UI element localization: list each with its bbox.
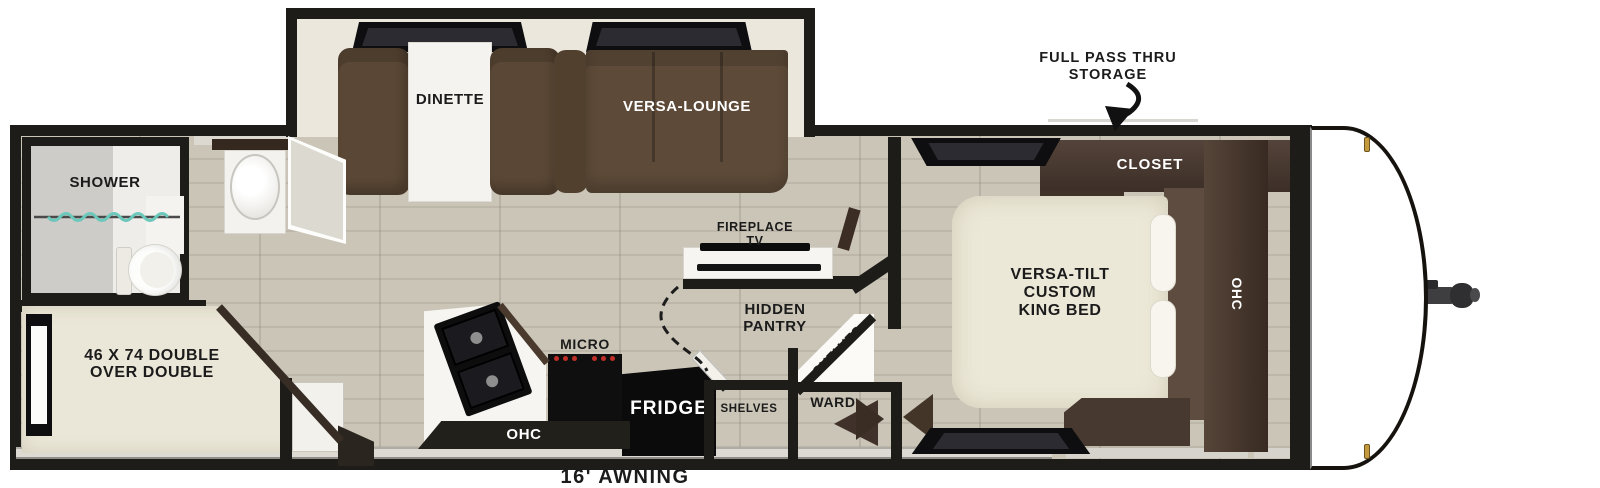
storage-callout-line2: STORAGE [1020,67,1196,84]
pillow-bottom [1150,300,1176,378]
closet-label: CLOSET [1075,157,1225,174]
dinette-bench-right [490,48,560,195]
vanity-counter-edge [212,139,288,150]
shower-label: SHOWER [40,175,170,192]
shelf-closet-right-wall [788,348,798,460]
rv-floorplan-diagram: DINETTE VERSA-LOUNGE SHOWER 46 X 74 DOUB… [0,0,1600,488]
hidden-pantry-label: HIDDEN PANTRY [709,302,841,335]
slideout-window-right-glass [596,28,742,46]
bunk-label-line2: OVER DOUBLE [40,364,264,381]
shelf-closet-label: SHELVES [712,403,786,416]
fireplace-tv-label: FIREPLACE TV [699,221,811,248]
toilet-seat [140,252,174,288]
king-bed-label: VERSA-TILT CUSTOM KING BED [962,266,1158,320]
burner-knob-6 [610,356,615,361]
pantry-label-line1: HIDDEN [709,302,841,319]
bedroom-ohc-label: OHC [1228,262,1244,326]
sink-drain-bottom [484,374,499,389]
storage-seam-line [1048,119,1198,122]
storage-callout: FULL PASS THRU STORAGE [1020,50,1196,83]
fireplace-hearth-lip [697,264,821,271]
versa-lounge-label: VERSA-LOUNGE [586,99,788,116]
storage-arrow-curve [1127,84,1139,114]
dinette-label: DINETTE [408,92,492,109]
bedroom-window-top-glass [926,143,1046,160]
burner-knob-4 [592,356,597,361]
burner-knob-3 [572,356,577,361]
kitchen-ohc-label: OHC [464,427,584,444]
sink-drain-top [469,330,484,345]
shelf-closet-left-wall [704,380,714,460]
micro-label: MICRO [548,337,622,353]
lounge-armrest [554,50,588,193]
hitch-tip [1470,288,1480,302]
wardrobe-right-wall [891,382,902,460]
bunk-label: 46 X 74 DOUBLE OVER DOUBLE [40,347,264,381]
pillow-top [1150,214,1176,292]
entry-step [292,382,344,452]
burner-knob-1 [554,356,559,361]
front-wall [1290,127,1312,468]
fireplace-label-line2: TV [699,235,811,249]
storage-callout-line1: FULL PASS THRU [1020,50,1196,67]
wardrobe-top-wall [798,382,902,392]
fridge-label: FRIDGE [622,398,716,419]
clearance-light-bottom [1364,444,1370,459]
awning-label: 16' AWNING [425,466,825,488]
bedroom-partition-wall [888,137,901,329]
bedroom-window-bottom-glass [930,433,1072,449]
fireplace-label-line1: FIREPLACE [699,221,811,235]
step-wall [280,378,292,460]
fireplace-console [683,247,833,279]
clearance-light-top [1364,137,1370,152]
range-cooktop [548,354,622,426]
burner-knob-5 [601,356,606,361]
bed-label-line1: VERSA-TILT [962,266,1158,284]
burner-knob-2 [563,356,568,361]
front-cap [1310,126,1428,470]
dinette-bench-left [338,48,410,195]
bedroom-nightstand [1064,398,1190,446]
lounge-sofa [586,50,788,193]
shelf-closet-top-wall [704,380,796,390]
pantry-label-line2: PANTRY [709,319,841,336]
bed-label-line3: KING BED [962,302,1158,320]
bunk-label-line1: 46 X 74 DOUBLE [40,347,264,364]
dinette-table [408,42,492,202]
bed-label-line2: CUSTOM [962,284,1158,302]
vanity-sink [230,154,280,220]
